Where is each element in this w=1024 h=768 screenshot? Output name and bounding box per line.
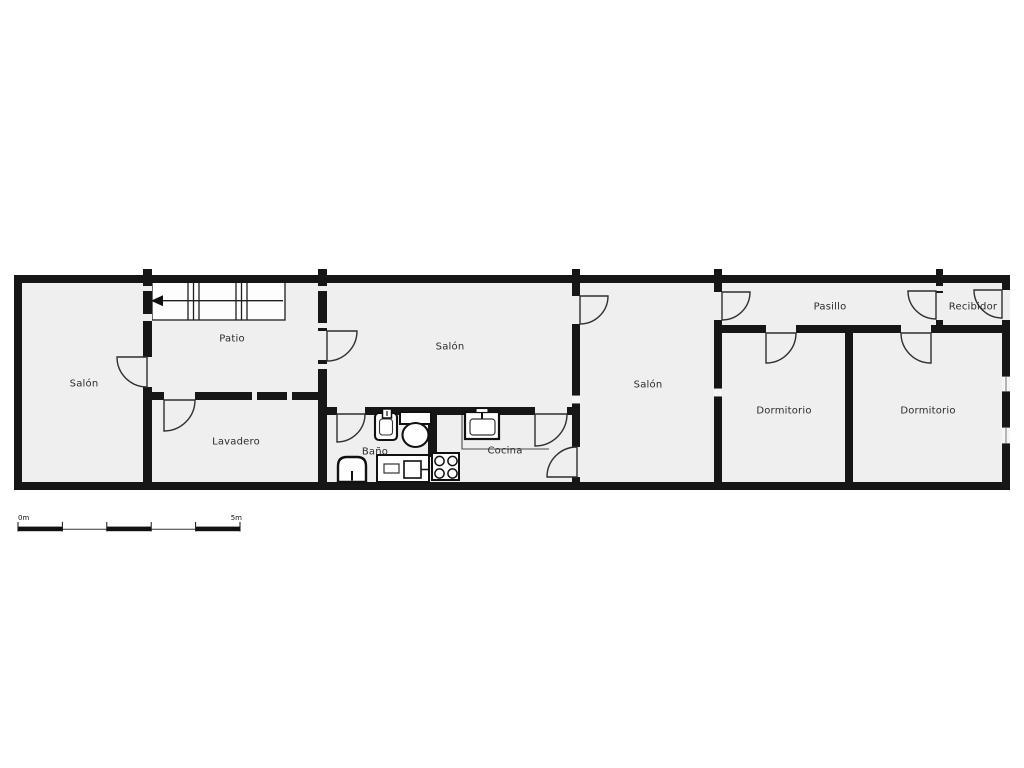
wall-seam: [252, 392, 257, 400]
room-label-recibidor: Recibidor: [949, 302, 997, 313]
doorway-salonright-pasillo: [714, 292, 722, 320]
washing-machine: [377, 455, 429, 482]
window-wall-saloncenter: [572, 395, 580, 404]
scale-bar: [18, 522, 240, 532]
wall-seam: [143, 314, 152, 321]
wall-seam: [936, 286, 943, 291]
wall-patio-saloncenter: [318, 275, 327, 490]
room-label-salon-right: Salón: [634, 380, 663, 391]
room-label-bano: Baño: [362, 447, 388, 458]
floor-plan-canvas: Salón Patio Lavadero Salón Baño Cocina S…: [0, 0, 1024, 768]
wall-seam: [143, 286, 152, 291]
floor-plan-drawing: [0, 0, 1024, 768]
doorway-pasillo-dormitorio1: [766, 325, 796, 333]
wall-tab: [318, 269, 327, 276]
kitchen-sink: [465, 409, 499, 440]
room-label-dormitorio-2: Dormitorio: [900, 406, 955, 417]
window-dormitorio2-lower: [1002, 427, 1010, 444]
wall-tab: [572, 269, 580, 276]
wall-seam: [318, 364, 327, 369]
room-label-dormitorio-1: Dormitorio: [756, 406, 811, 417]
wall-dormitorio1-dormitorio2: [845, 333, 853, 490]
stove-4-burners: [432, 453, 459, 480]
wall-pasillo-dormitorios: [714, 325, 1010, 333]
shower-tray: [338, 457, 366, 482]
room-label-pasillo: Pasillo: [814, 302, 847, 313]
window-dormitorio2-upper: [1002, 376, 1010, 392]
outer-wall-left: [14, 275, 22, 490]
room-label-salon-left: Salón: [70, 379, 99, 390]
stairs-with-arrow: [151, 281, 285, 320]
room-label-salon-center: Salón: [436, 342, 465, 353]
room-label-cocina: Cocina: [487, 446, 522, 457]
room-label-lavadero: Lavadero: [212, 437, 260, 448]
wall-tab: [936, 269, 943, 276]
bath-sink: [375, 409, 397, 440]
scale-start-label: 0m: [18, 514, 29, 522]
wall-tab: [143, 269, 152, 276]
doorway-pasillo-dormitorio2: [901, 325, 931, 333]
wall-tab: [714, 269, 722, 276]
doorway-pasillo-recibidor: [936, 293, 943, 320]
wall-seam: [318, 323, 327, 328]
wall-seam: [287, 392, 292, 400]
scale-end-label: 5m: [228, 514, 242, 522]
doorway-patio-saloncenter: [318, 331, 327, 360]
toilet: [400, 412, 431, 447]
outer-wall-bottom: [14, 482, 1010, 490]
doorway-entry: [1002, 290, 1010, 320]
outer-wall-top: [14, 275, 1010, 283]
wall-seam: [318, 286, 327, 291]
doorway-saloncenter-salonright: [572, 296, 580, 324]
window-wall-salonright: [714, 388, 722, 397]
doorway-patio-lavadero: [164, 392, 195, 400]
room-label-patio: Patio: [219, 334, 245, 345]
